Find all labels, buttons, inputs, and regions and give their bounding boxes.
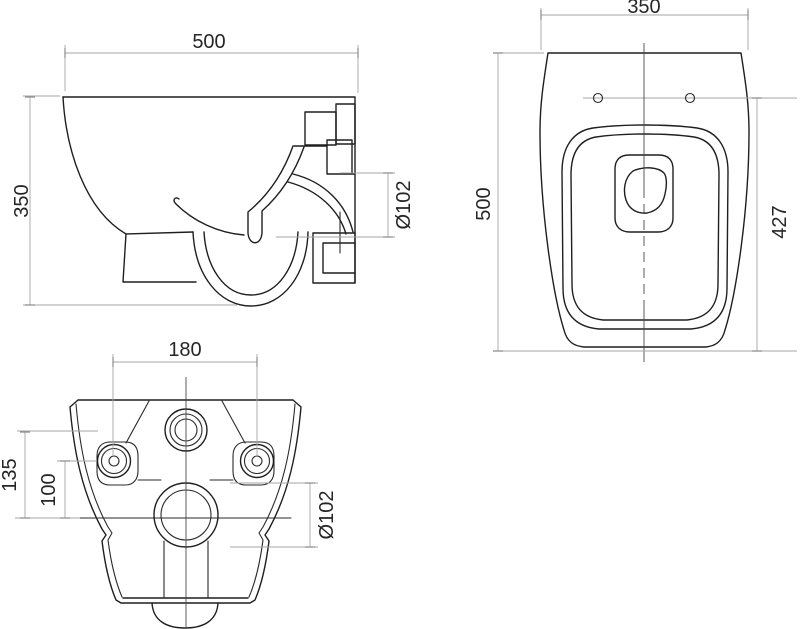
technical-drawing-sheet: 500 350 Ø102 350 500 427 bbox=[0, 0, 800, 629]
rim-block bbox=[123, 232, 196, 282]
dim-label-front-width: 350 bbox=[627, 0, 660, 18]
dim-label-bottom-offset-short: 100 bbox=[38, 473, 60, 506]
dim-label-front-mount-height: 427 bbox=[769, 205, 791, 238]
bottom-view: 180 135 100 Ø102 bbox=[0, 339, 338, 628]
body-inner-wall bbox=[76, 404, 295, 597]
body-outline bbox=[70, 400, 301, 603]
mount-hole-left-mid bbox=[102, 449, 127, 474]
mount-hole-left-outer bbox=[98, 445, 131, 478]
rim-inner bbox=[571, 134, 719, 320]
mount-hole-left-inner bbox=[109, 456, 119, 466]
bowl-inner-line bbox=[174, 198, 244, 235]
dim-label-side-width: 500 bbox=[192, 31, 225, 53]
dim-label-bottom-drain-diameter: Ø102 bbox=[316, 491, 338, 540]
outlet-pipe-arcs bbox=[288, 174, 353, 234]
recess-diagonals bbox=[126, 401, 245, 443]
dim-label-side-outlet-diameter: Ø102 bbox=[393, 181, 415, 230]
body-outline bbox=[63, 97, 355, 283]
dim-label-side-height: 350 bbox=[11, 184, 33, 217]
dim-extensions bbox=[494, 8, 797, 351]
dim-label-bottom-offset-long: 135 bbox=[0, 458, 21, 491]
dim-label-bottom-hole-spacing: 180 bbox=[168, 339, 201, 361]
side-view: 500 350 Ø102 bbox=[11, 31, 415, 306]
outlet-block bbox=[313, 233, 355, 283]
mount-hole-right-inner bbox=[252, 456, 262, 466]
dim-label-front-height: 500 bbox=[473, 187, 495, 220]
front-view: 350 500 427 bbox=[473, 0, 797, 362]
dim-extensions bbox=[23, 45, 395, 305]
bottom-bulge bbox=[152, 603, 218, 628]
bowl-front-curve bbox=[63, 97, 126, 234]
outlet-block-inner bbox=[323, 243, 355, 273]
bracket-rect-top bbox=[336, 104, 355, 144]
drain-blob bbox=[624, 168, 666, 213]
flush-channel bbox=[248, 146, 304, 243]
toilet-dimension-drawing: 500 350 Ø102 350 500 427 bbox=[0, 0, 800, 629]
